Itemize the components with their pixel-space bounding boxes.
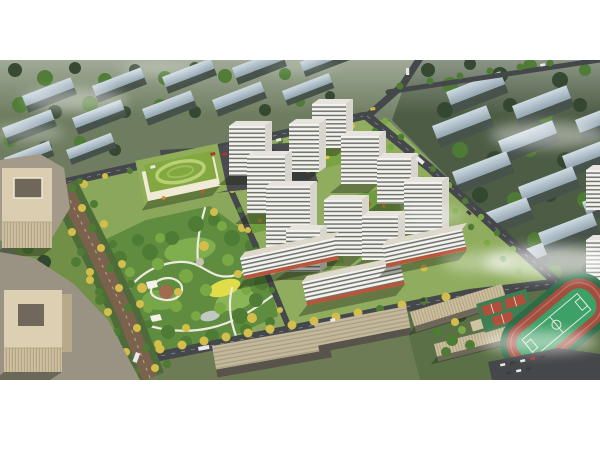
park-plaza-node — [159, 285, 173, 299]
architectural-rendering-page — [0, 0, 600, 450]
rendering-canvas — [0, 0, 600, 450]
bottom-margin — [0, 380, 600, 450]
top-margin — [0, 0, 600, 60]
office-building-south — [0, 290, 72, 380]
office-building-north — [0, 168, 52, 256]
tower-offsite — [586, 165, 600, 210]
